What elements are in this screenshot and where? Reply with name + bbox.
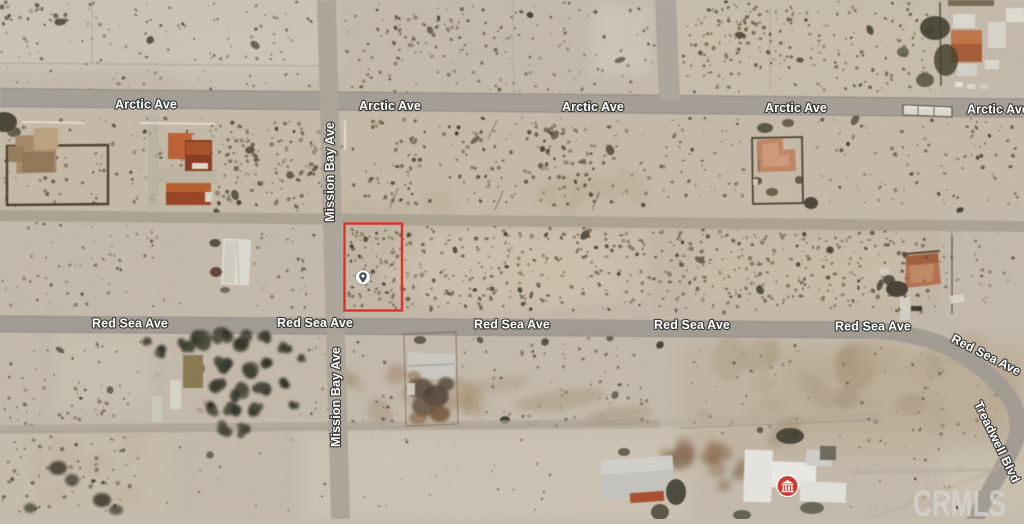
svg-text:CRMLS: CRMLS: [913, 483, 1006, 519]
svg-text:Mission Bay Ave: Mission Bay Ave: [323, 122, 337, 222]
svg-text:Red Sea Ave: Red Sea Ave: [474, 318, 550, 332]
svg-text:Red Sea Ave: Red Sea Ave: [92, 317, 168, 331]
svg-text:Arctic Ave: Arctic Ave: [115, 98, 177, 112]
svg-text:Arctic Ave: Arctic Ave: [562, 100, 624, 114]
svg-text:Red Sea Ave: Red Sea Ave: [654, 318, 730, 332]
svg-text:Arctic Ave: Arctic Ave: [359, 99, 421, 113]
svg-text:Mission Bay Ave: Mission Bay Ave: [329, 347, 343, 447]
svg-text:Arctic Ave: Arctic Ave: [765, 101, 827, 115]
svg-text:Arctic Ave: Arctic Ave: [967, 103, 1024, 117]
svg-text:Red Sea Ave: Red Sea Ave: [835, 320, 911, 334]
svg-text:Red Sea Ave: Red Sea Ave: [277, 316, 353, 330]
